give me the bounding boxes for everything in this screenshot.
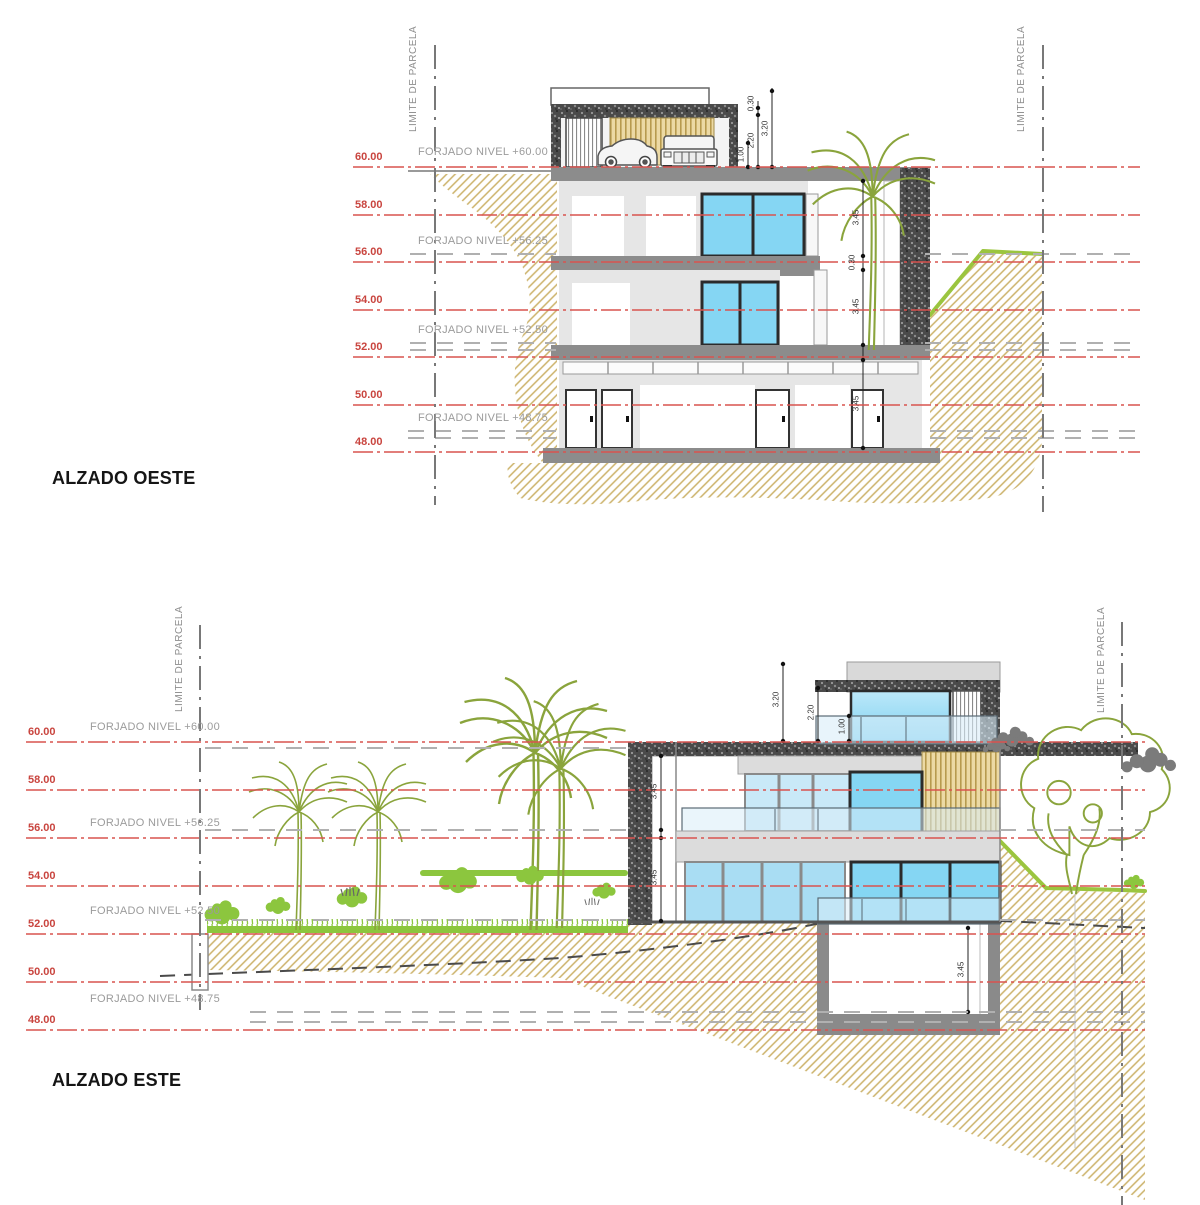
forjado-label: FORJADO NIVEL +56.25 — [90, 817, 220, 829]
parcel-boundary-label: LIMITE DE PARCELA — [408, 26, 420, 132]
dim-label: 3.45 — [852, 387, 861, 421]
level-label: 48.00 — [355, 436, 397, 448]
parcel-boundary-label: LIMITE DE PARCELA — [174, 606, 186, 712]
dim-label: 1.00 — [838, 710, 847, 744]
dim-label: 2.20 — [747, 124, 756, 158]
level-label: 54.00 — [28, 870, 70, 882]
palm-trees — [249, 678, 626, 930]
dim-label: 3.20 — [761, 112, 770, 146]
forjado-label: FORJADO NIVEL +60.00 — [90, 721, 220, 733]
elevation-sheet: ALZADO OESTE 60.00 58.00 56.00 54.00 52.… — [0, 0, 1200, 1205]
retaining-wall — [900, 168, 930, 347]
garden-ground — [207, 926, 628, 933]
car-front-view — [661, 136, 717, 168]
level-label: 60.00 — [28, 726, 70, 738]
forjado-label: FORJADO NIVEL +48.75 — [90, 993, 220, 1005]
drawing-geometry — [0, 0, 1200, 1205]
level-label: 50.00 — [355, 389, 397, 401]
level-label: 60.00 — [355, 151, 397, 163]
level-label: 50.00 — [28, 966, 70, 978]
dim-label: 0.30 — [848, 246, 857, 280]
forjado-label: FORJADO NIVEL +52.50 — [90, 905, 220, 917]
retaining-wall-left — [628, 743, 652, 925]
level-label: 56.00 — [28, 822, 70, 834]
parcel-boundary-label: LIMITE DE PARCELA — [1096, 607, 1108, 713]
lower-balustrade — [818, 898, 1000, 924]
forjado-label: FORJADO NIVEL +60.00 — [418, 146, 548, 158]
dim-label: 2.20 — [807, 696, 816, 730]
level-label: 58.00 — [28, 774, 70, 786]
dim-label: 3.45 — [852, 201, 861, 235]
level-label: 56.00 — [355, 246, 397, 258]
oeste-title: ALZADO OESTE — [52, 468, 195, 489]
dim-label: 1.00 — [737, 138, 746, 172]
forjado-label: FORJADO NIVEL +56.25 — [418, 235, 548, 247]
forjado-label: FORJADO NIVEL +52.50 — [418, 324, 548, 336]
dim-label: 0.30 — [747, 87, 756, 121]
dim-label: 3.20 — [772, 683, 781, 717]
garage-louver-door — [566, 118, 602, 167]
este-title: ALZADO ESTE — [52, 1070, 181, 1091]
level-label: 48.00 — [28, 1014, 70, 1026]
level-label: 54.00 — [355, 294, 397, 306]
dim-label: 3.45 — [852, 290, 861, 324]
dim-label: 3.45 — [650, 861, 659, 895]
level-label: 52.00 — [28, 918, 70, 930]
basement-box — [817, 922, 1000, 1035]
level-label: 58.00 — [355, 199, 397, 211]
forjado-label: FORJADO NIVEL +48.75 — [418, 412, 548, 424]
dim-label: 3.45 — [650, 775, 659, 809]
parcel-boundary-label: LIMITE DE PARCELA — [1016, 26, 1028, 132]
upper-balustrade — [682, 808, 1000, 832]
dim-label: 3.45 — [957, 953, 966, 987]
level-label: 52.00 — [355, 341, 397, 353]
